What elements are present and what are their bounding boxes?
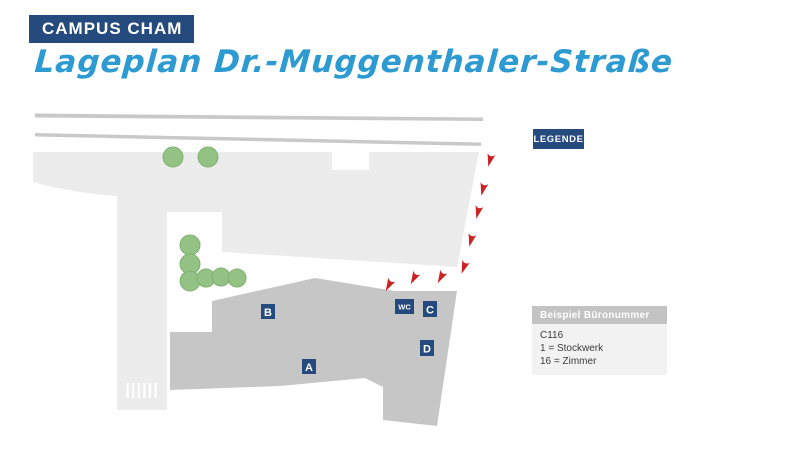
building-marker-c[interactable]: C [423,301,437,317]
legend-panel-title: Beispiel Büronummer [532,306,667,324]
route-arrow-icon [477,182,488,197]
legend-line-room: 16 = Zimmer [540,355,659,368]
building-marker-wc-label: WC [398,303,411,312]
route-arrow-icon [465,233,476,248]
building-marker-b[interactable]: B [261,304,275,319]
legend-panel-body: C116 1 = Stockwerk 16 = Zimmer [532,324,667,368]
building-marker-a-label: A [305,362,313,374]
legend-line-floor: 1 = Stockwerk [540,342,659,355]
route-arrow-icon [458,260,470,275]
building-marker-wc[interactable]: WC [395,299,414,314]
legende-button[interactable]: LEGENDE [533,129,584,149]
campus-title-badge: CAMPUS CHAM [29,15,194,43]
legend-line-example: C116 [540,329,659,342]
route-arrow-icon [434,270,447,285]
legend-panel: Beispiel Büronummer C116 1 = Stockwerk 1… [532,306,667,375]
building-marker-d-label: D [423,344,431,356]
building-marker-c-label: C [426,305,434,317]
page-subtitle: Lageplan Dr.-Muggenthaler-Straße [33,44,576,80]
campus-map-page: B A WC C D CAMPUS CHAM Lageplan Dr.-Mugg… [0,0,800,457]
road-line-top [35,114,483,122]
road-line-bottom [35,133,481,146]
building-marker-d[interactable]: D [420,340,434,356]
route-arrow-icon [484,153,495,168]
building-marker-a[interactable]: A [302,359,316,374]
building-marker-b-label: B [264,307,272,319]
route-arrow-icon [472,205,483,220]
campus-title: CAMPUS CHAM [42,19,182,39]
route-arrow-icon [407,271,420,286]
